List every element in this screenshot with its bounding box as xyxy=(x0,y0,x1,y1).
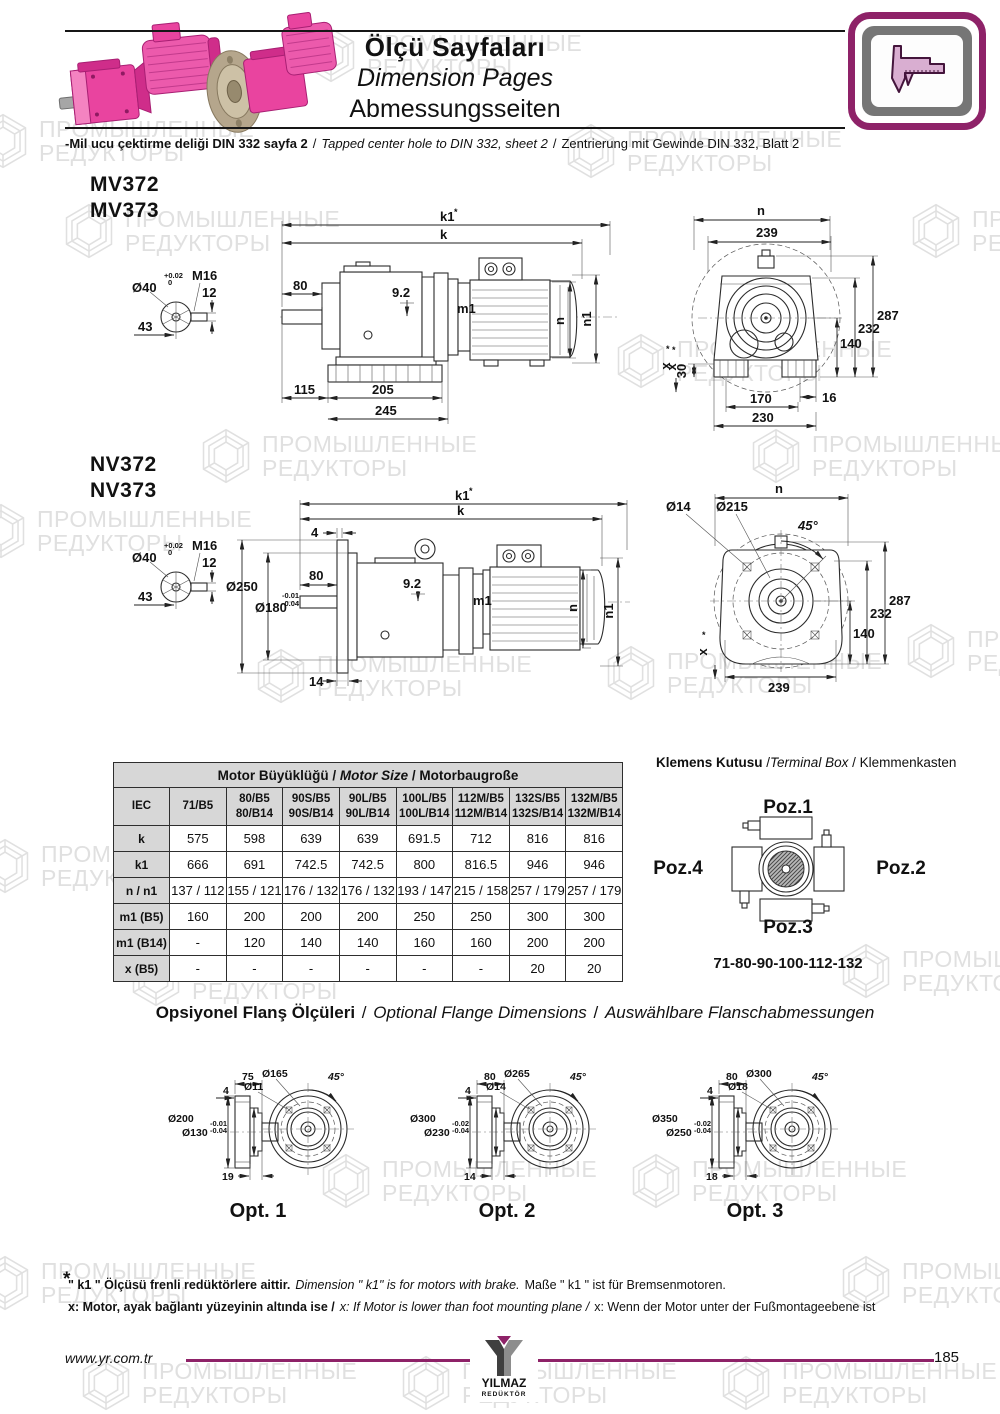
table-cell: 946 xyxy=(509,852,566,878)
dim-label: n xyxy=(775,481,783,496)
table-cell: 155 / 121 xyxy=(226,878,283,904)
dim-label: 19 xyxy=(222,1171,234,1183)
dim-label: n xyxy=(565,604,580,612)
table-cell: 742.5 xyxy=(339,852,396,878)
table-col-iec: IEC xyxy=(114,788,170,826)
table-cell: 137 / 112 xyxy=(170,878,227,904)
dim-label: 16 xyxy=(822,390,836,405)
dim-label: n xyxy=(757,203,765,218)
table-col-header: 132M/B5132M/B14 xyxy=(566,788,623,826)
dim-label: 43 xyxy=(138,319,152,334)
dim-label: 80 xyxy=(293,278,307,293)
table-cell: 639 xyxy=(339,826,396,852)
dim-label: * xyxy=(702,630,706,640)
din-note-turkish: -Mil ucu çektirme deliği DIN 332 sayfa 2 xyxy=(65,136,308,151)
table-cell: 140 xyxy=(283,930,340,956)
dim-label: Ø230 xyxy=(424,1127,450,1139)
dim-label: Ø250 xyxy=(666,1127,692,1139)
table-cell: 598 xyxy=(226,826,283,852)
dim-label: M16 xyxy=(192,268,217,283)
terminal-position-1: Poz.1 xyxy=(763,797,813,819)
dim-label: Ø165 xyxy=(262,1068,288,1080)
dim-label: x xyxy=(695,648,710,656)
dim-label: -0.04 xyxy=(452,1126,470,1135)
table-cell: 257 / 179 xyxy=(509,878,566,904)
table-row: k575598639639691.5712816816 xyxy=(114,826,623,852)
footer-rule xyxy=(186,1359,934,1362)
dim-label: Ø265 xyxy=(504,1068,530,1080)
table-cell: 300 xyxy=(509,904,566,930)
table-row-label: k xyxy=(114,826,170,852)
din-note-german: Zentrierung mit Gewinde DIN 332, Blatt 2 xyxy=(561,136,799,151)
table-col-header: 90L/B590L/B14 xyxy=(339,788,396,826)
dim-label: 170 xyxy=(750,391,772,406)
page-number: 185 xyxy=(934,1349,959,1366)
dim-label: 115 xyxy=(294,382,315,397)
terminal-box-diagram xyxy=(710,813,866,931)
table-col-header: 132S/B5132S/B14 xyxy=(509,788,566,826)
page-title-turkish: Ölçü Sayfaları xyxy=(65,32,845,63)
dim-label: Ø11 xyxy=(244,1081,263,1093)
dim-label: Ø300 xyxy=(410,1113,436,1125)
table-cell: 193 / 147 xyxy=(396,878,453,904)
dim-label: 287 xyxy=(877,308,899,323)
table-cell: - xyxy=(226,956,283,982)
terminal-position-2: Poz.2 xyxy=(876,858,926,880)
caliper-icon-frame xyxy=(862,26,972,116)
table-row: n / n1137 / 112155 / 121176 / 132176 / 1… xyxy=(114,878,623,904)
dim-label: 45° xyxy=(811,1071,829,1083)
terminal-box-sizes: 71-80-90-100-112-132 xyxy=(713,955,862,972)
table-cell: 120 xyxy=(226,930,283,956)
table-row: k1666691742.5742.5800816.5946946 xyxy=(114,852,623,878)
table-col-header: 80/B580/B14 xyxy=(226,788,283,826)
table-cell: 160 xyxy=(396,930,453,956)
dim-label: 12 xyxy=(202,285,216,300)
table-col-header: 112M/B5112M/B14 xyxy=(453,788,510,826)
dim-label: Ø300 xyxy=(746,1068,772,1080)
motor-size-table: Motor Büyüklüğü / Motor Size / Motorbaug… xyxy=(113,762,623,982)
flange-option-3-label: Opt. 3 xyxy=(727,1200,784,1223)
flange-option-1-label: Opt. 1 xyxy=(230,1200,287,1223)
table-cell: 215 / 158 xyxy=(453,878,510,904)
dim-label: 30 xyxy=(674,364,689,378)
flange-option-2-label: Opt. 2 xyxy=(479,1200,536,1223)
dim-label: 0 xyxy=(168,548,172,557)
table-cell: 176 / 132 xyxy=(283,878,340,904)
table-cell: - xyxy=(453,956,510,982)
table-cell: 200 xyxy=(339,904,396,930)
terminal-position-4: Poz.4 xyxy=(653,858,703,880)
nv-shaft-detail-drawing: Ø40 +0.02 0 M16 12 43 xyxy=(130,532,240,614)
dim-label: x xyxy=(658,362,673,370)
table-cell: - xyxy=(170,956,227,982)
page-title-german: Abmessungsseiten xyxy=(65,94,845,125)
dim-label: * xyxy=(454,207,458,217)
table-cell: 176 / 132 xyxy=(339,878,396,904)
table-cell: 20 xyxy=(509,956,566,982)
table-row-label: x (B5) xyxy=(114,956,170,982)
mv-side-view-drawing: k1 * k 80 9.2 m1 n n1 x * 115 205 245 xyxy=(280,195,685,433)
table-cell: 691 xyxy=(226,852,283,878)
table-cell: 140 xyxy=(339,930,396,956)
dim-label: k1 xyxy=(455,488,469,503)
table-cell: 250 xyxy=(453,904,510,930)
table-col-header: 100L/B5100L/B14 xyxy=(396,788,453,826)
dim-label: 245 xyxy=(375,403,397,418)
dim-label: n xyxy=(552,317,567,325)
model-mv373: MV373 xyxy=(90,198,159,224)
table-cell: 816 xyxy=(509,826,566,852)
dim-label: 0 xyxy=(168,278,172,287)
table-cell: 712 xyxy=(453,826,510,852)
dim-label: n1 xyxy=(579,311,594,326)
nv-side-view-drawing: k1 * k 4 Ø250 Ø180 -0.01 -0.04 80 9.2 m1… xyxy=(225,490,645,698)
table-cell: 160 xyxy=(170,904,227,930)
table-cell: 575 xyxy=(170,826,227,852)
dim-label: Ø40 xyxy=(132,280,157,295)
table-cell: 639 xyxy=(283,826,340,852)
model-heading-nv: NV372 NV373 xyxy=(90,452,157,504)
dim-label: M16 xyxy=(192,538,217,553)
watermark: ПРОМЫШЛЕННЫЕРЕДУКТОРЫ xyxy=(195,425,477,487)
table-title: Motor Büyüklüğü / Motor Size / Motorbaug… xyxy=(114,763,623,788)
dim-label: 239 xyxy=(768,680,790,695)
table-cell: 300 xyxy=(566,904,623,930)
dim-label: 45° xyxy=(327,1071,345,1083)
table-cell: - xyxy=(170,930,227,956)
dim-label: Ø40 xyxy=(132,550,157,565)
table-row-label: m1 (B14) xyxy=(114,930,170,956)
dim-label: m1 xyxy=(457,301,476,316)
model-heading-mv: MV372 MV373 xyxy=(90,172,159,224)
table-cell: 666 xyxy=(170,852,227,878)
footer-website: www.yr.com.tr xyxy=(65,1350,152,1366)
footnote-x: x: Motor, ayak bağlantı yüzeyinin altınd… xyxy=(68,1300,880,1314)
dim-label: 4 xyxy=(707,1085,713,1097)
dim-label: 4 xyxy=(311,525,319,540)
dim-label: 4 xyxy=(465,1085,471,1097)
caliper-icon xyxy=(848,12,986,130)
table-cell: 200 xyxy=(226,904,283,930)
table-row: x (B5)------2020 xyxy=(114,956,623,982)
dim-label: +0.02 xyxy=(164,271,183,280)
table-cell: - xyxy=(283,956,340,982)
dim-label: 14 xyxy=(309,674,324,689)
page-title-english: Dimension Pages xyxy=(65,63,845,94)
dim-label: Ø200 xyxy=(168,1113,194,1125)
dim-label: 4 xyxy=(223,1085,229,1097)
table-cell: 800 xyxy=(396,852,453,878)
table-cell: 742.5 xyxy=(283,852,340,878)
dim-label: -0.04 xyxy=(694,1126,712,1135)
dim-label: Ø250 xyxy=(226,579,258,594)
table-cell: 160 xyxy=(453,930,510,956)
dim-label: 232 xyxy=(858,321,880,336)
brand-name: YILMAZ xyxy=(482,1376,527,1390)
dim-label: 9.2 xyxy=(403,576,421,591)
dim-label: 45° xyxy=(569,1071,587,1083)
flange-drawing-opt2: 80 4 Ø300 Ø230 -0.02 -0.04 14 Ø265 Ø14 4… xyxy=(392,1068,602,1190)
dim-label: 140 xyxy=(853,626,875,641)
table-cell: - xyxy=(339,956,396,982)
table-row: m1 (B14)-120140140160160200200 xyxy=(114,930,623,956)
table-cell: 200 xyxy=(509,930,566,956)
nv-end-view-drawing: n Ø14 Ø215 45° 287 232 140 x * 239 xyxy=(658,478,1000,713)
dim-label: k xyxy=(440,227,448,242)
dim-label: 45° xyxy=(797,518,818,533)
dim-label: n1 xyxy=(601,603,616,618)
dim-label: Ø350 xyxy=(652,1113,678,1125)
catalog-page: ПРОМЫШЛЕННЫЕРЕДУКТОРЫ ПРОМЫШЛЕННЫЕРЕДУКТ… xyxy=(0,0,1000,1414)
dim-label: k xyxy=(457,503,465,518)
dim-label: Ø14 xyxy=(666,499,691,514)
din-note: -Mil ucu çektirme deliği DIN 332 sayfa 2… xyxy=(65,136,799,151)
dim-label: 239 xyxy=(756,225,778,240)
dim-label: Ø215 xyxy=(716,499,748,514)
caliper-glyph xyxy=(880,40,954,102)
dim-label: +0.02 xyxy=(164,541,183,550)
dim-label: Ø14 xyxy=(486,1081,506,1093)
table-cell: 816.5 xyxy=(453,852,510,878)
table-cell: - xyxy=(396,956,453,982)
table-row-label: k1 xyxy=(114,852,170,878)
page-title-block: Ölçü Sayfaları Dimension Pages Abmessung… xyxy=(65,32,845,125)
dim-label: 140 xyxy=(840,336,862,351)
dim-label: Ø130 xyxy=(182,1127,208,1139)
dim-label: 230 xyxy=(752,410,774,425)
table-cell: 257 / 179 xyxy=(566,878,623,904)
model-mv372: MV372 xyxy=(90,172,159,198)
table-cell: 200 xyxy=(566,930,623,956)
table-cell: 250 xyxy=(396,904,453,930)
table-row-label: n / n1 xyxy=(114,878,170,904)
dim-label: 287 xyxy=(889,593,911,608)
dim-label: 9.2 xyxy=(392,285,410,300)
table-row-label: m1 (B5) xyxy=(114,904,170,930)
model-nv373: NV373 xyxy=(90,478,157,504)
header-rule-bottom xyxy=(65,127,845,129)
table-cell: 20 xyxy=(566,956,623,982)
model-nv372: NV372 xyxy=(90,452,157,478)
dim-label: 80 xyxy=(309,568,323,583)
flange-section-title: Opsiyonel Flanş Ölçüleri / Optional Flan… xyxy=(156,1003,875,1023)
dim-label: * xyxy=(469,486,473,496)
table-cell: 200 xyxy=(283,904,340,930)
dim-label: * xyxy=(666,344,670,354)
table-cell: 816 xyxy=(566,826,623,852)
dim-label: -0.04 xyxy=(282,599,300,608)
footnote-k1: " k1 " Ölçüsü frenli redüktörlere aittir… xyxy=(68,1278,731,1292)
table-col-header: 90S/B590S/B14 xyxy=(283,788,340,826)
dim-label: 232 xyxy=(870,606,892,621)
table-row: m1 (B5)160200200200250250300300 xyxy=(114,904,623,930)
yilmaz-logo: YILMAZ REDÜKTÖR xyxy=(470,1334,538,1402)
terminal-box-title: Klemens Kutusu /Terminal Box / Klemmenka… xyxy=(656,755,956,770)
dim-label: m1 xyxy=(473,593,492,608)
flange-drawing-opt3: 80 4 Ø350 Ø250 -0.02 -0.04 18 Ø300 Ø18 4… xyxy=(634,1068,844,1190)
mv-end-view-drawing: n 239 287 232 140 30 x * 16 170 230 xyxy=(658,190,1000,438)
flange-drawing-opt1: 75 4 Ø200 Ø130 -0.01 -0.04 19 Ø165 Ø11 4… xyxy=(150,1068,360,1190)
dim-label: 12 xyxy=(202,555,216,570)
watermark: ПРОМЫШЛЕННЫЕРЕДУКТОРЫ xyxy=(560,120,842,182)
din-note-english: Tapped center hole to DIN 332, sheet 2 xyxy=(321,136,547,151)
table-col-header: 71/B5 xyxy=(170,788,227,826)
dim-label: 18 xyxy=(706,1171,718,1183)
table-cell: 946 xyxy=(566,852,623,878)
dim-label: k1 xyxy=(440,209,454,224)
dim-label: 14 xyxy=(464,1171,476,1183)
dim-label: 205 xyxy=(372,382,394,397)
dim-label: -0.04 xyxy=(210,1126,228,1135)
dim-label: 43 xyxy=(138,589,152,604)
mv-shaft-detail-drawing: Ø40 +0.02 0 M16 12 43 xyxy=(130,262,240,344)
dim-label: Ø18 xyxy=(728,1081,748,1093)
terminal-position-3: Poz.3 xyxy=(763,917,813,939)
brand-subtitle: REDÜKTÖR xyxy=(482,1389,527,1398)
table-cell: 691.5 xyxy=(396,826,453,852)
